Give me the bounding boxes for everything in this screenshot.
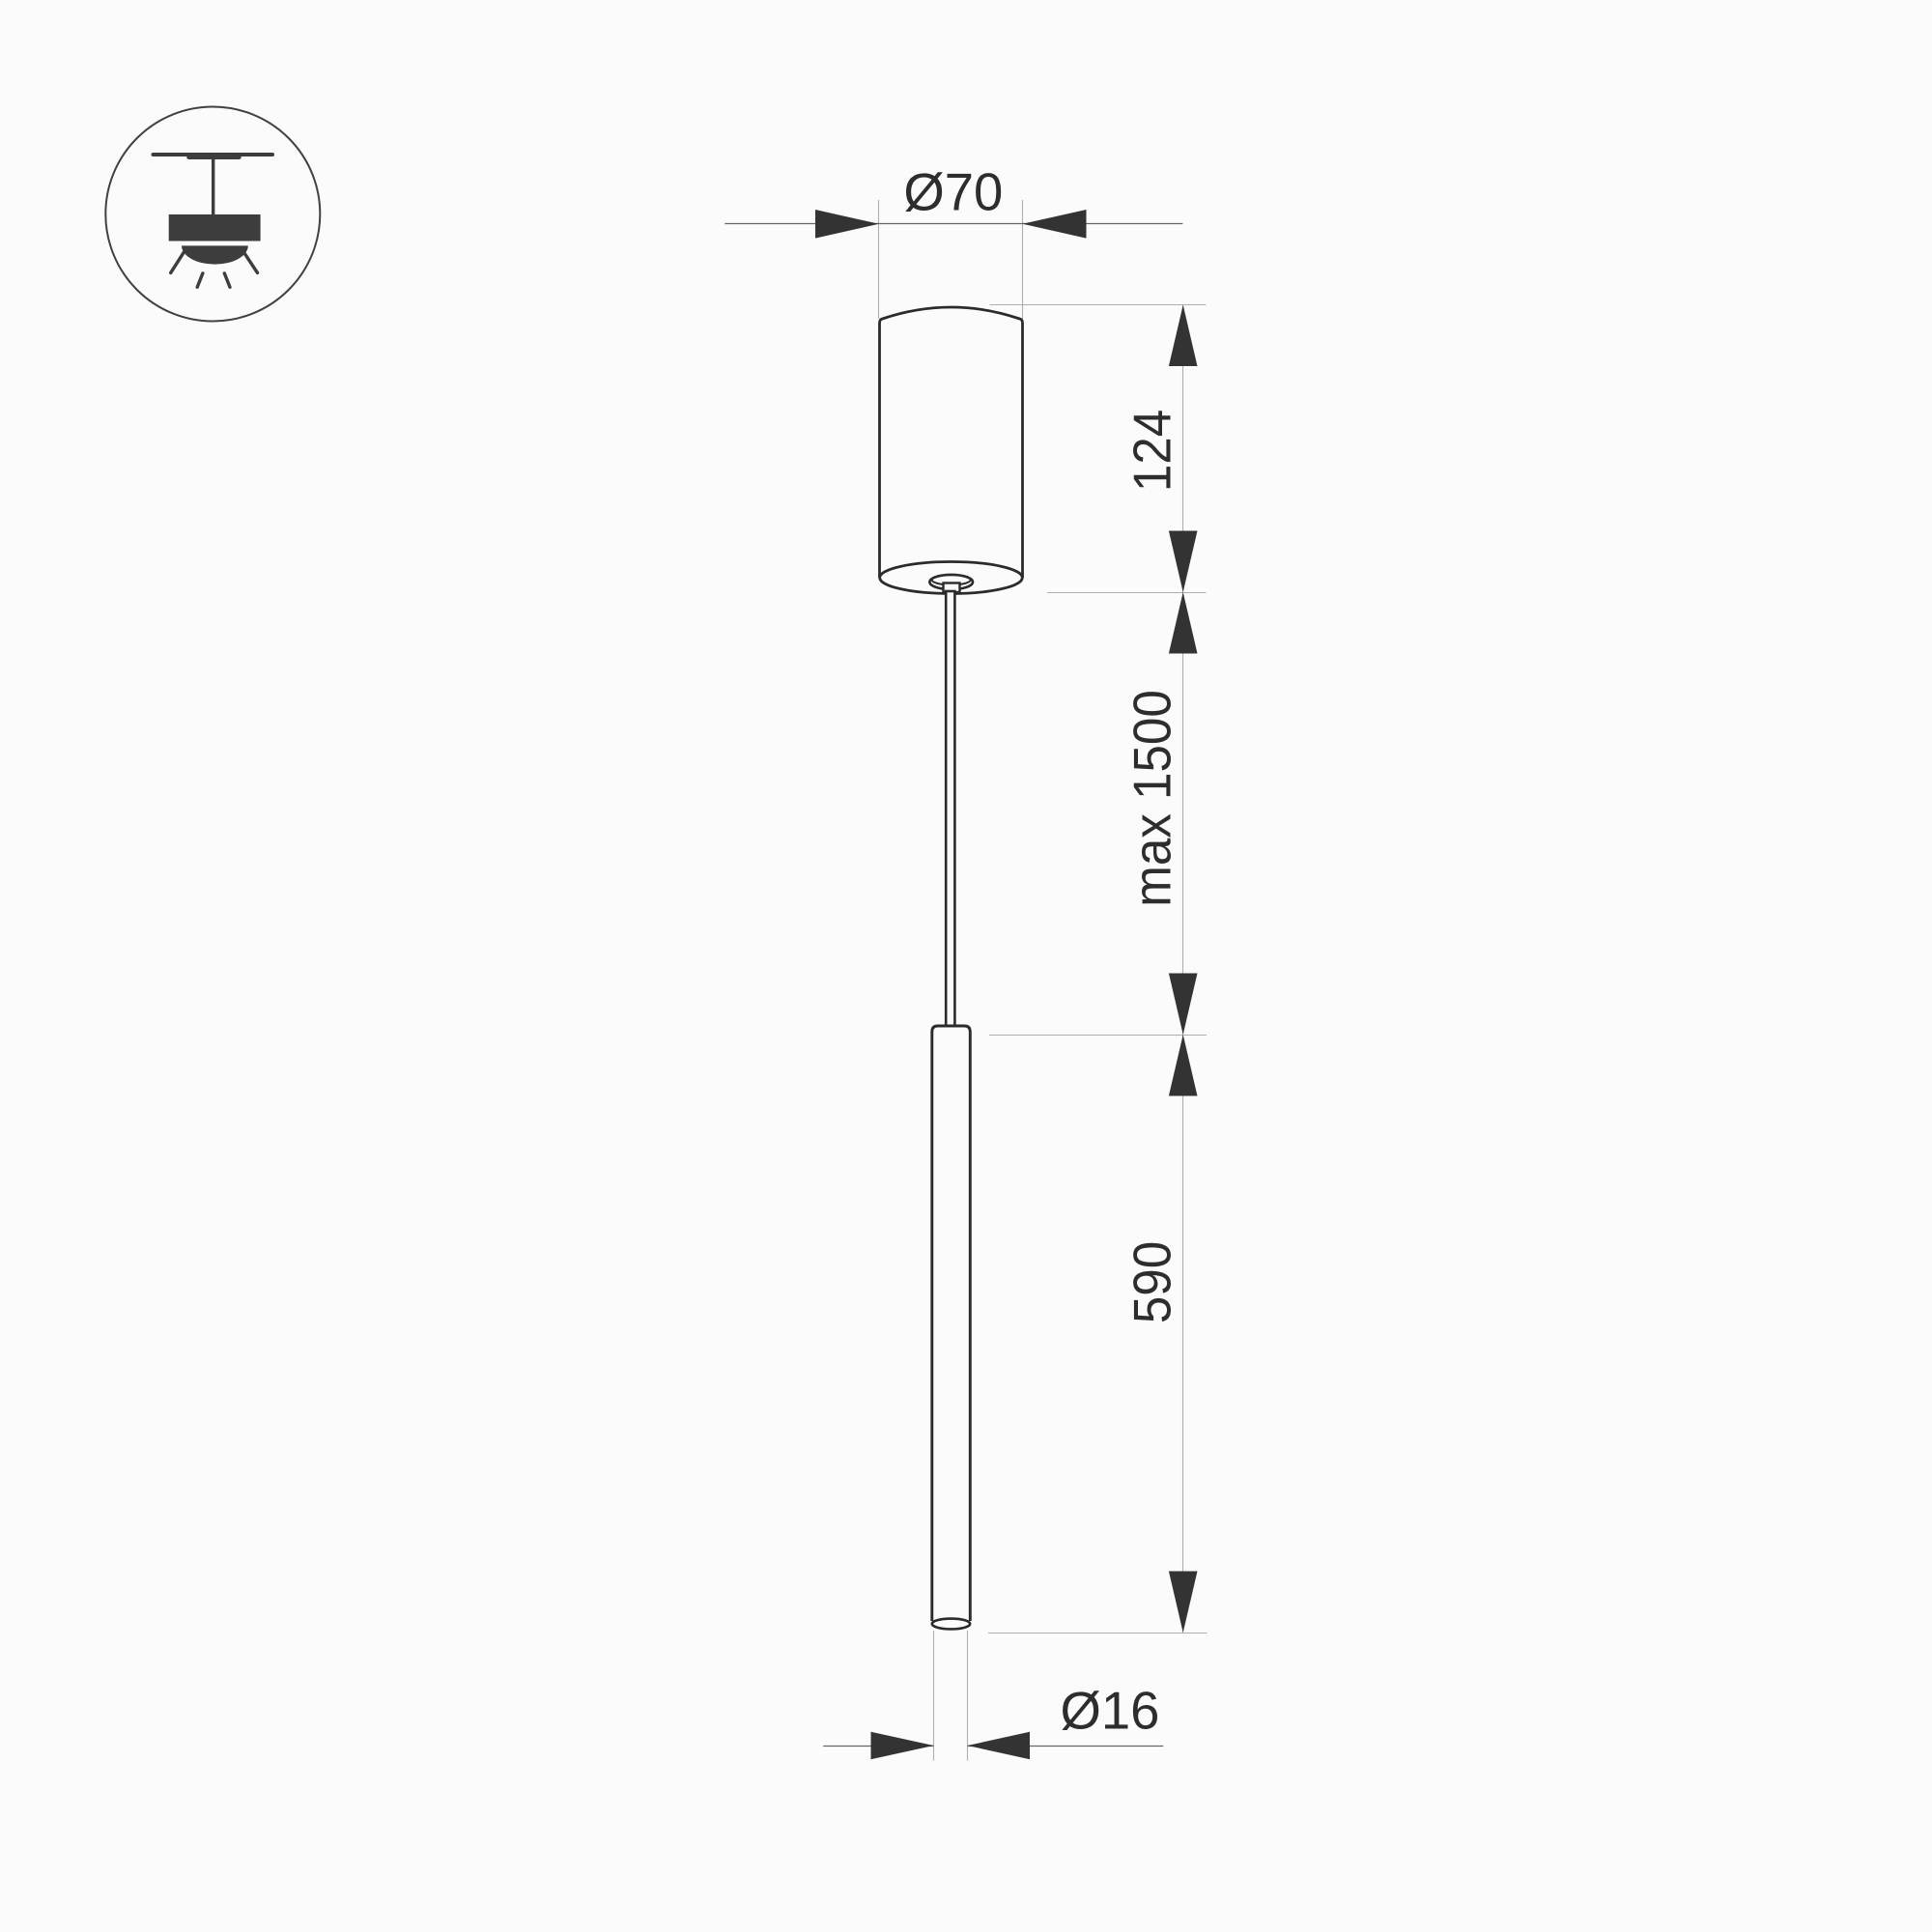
svg-text:Ø70: Ø70 (903, 161, 1003, 221)
svg-text:Ø16: Ø16 (1061, 1680, 1160, 1740)
svg-text:max 1500: max 1500 (1123, 690, 1182, 907)
svg-text:124: 124 (1123, 410, 1182, 492)
svg-text:590: 590 (1123, 1241, 1182, 1323)
